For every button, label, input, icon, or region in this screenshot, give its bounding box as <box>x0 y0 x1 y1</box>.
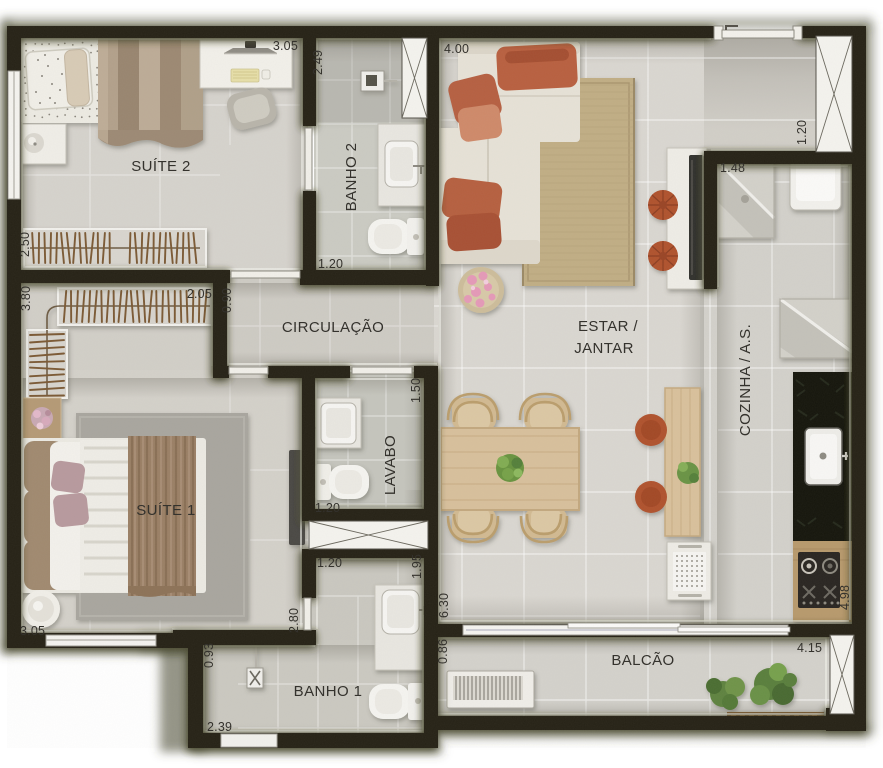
svg-text:ESTAR /: ESTAR / <box>578 318 638 335</box>
svg-text:4.00: 4.00 <box>444 42 469 56</box>
svg-text:2.05: 2.05 <box>187 287 212 301</box>
svg-text:BANHO 2: BANHO 2 <box>343 143 360 212</box>
svg-text:BANHO 1: BANHO 1 <box>294 683 363 700</box>
svg-text:3.05: 3.05 <box>20 624 45 638</box>
svg-text:1.50: 1.50 <box>409 378 423 403</box>
svg-text:1.48: 1.48 <box>720 161 745 175</box>
svg-text:0.86: 0.86 <box>436 639 450 664</box>
svg-text:3.80: 3.80 <box>19 286 33 311</box>
svg-text:2.50: 2.50 <box>18 232 32 257</box>
svg-text:2.49: 2.49 <box>311 50 325 75</box>
svg-text:1.20: 1.20 <box>795 120 809 145</box>
svg-text:2.39: 2.39 <box>207 720 232 734</box>
svg-text:1.20: 1.20 <box>318 257 343 271</box>
svg-text:SUÍTE 1: SUÍTE 1 <box>136 502 195 519</box>
svg-text:1.20: 1.20 <box>315 501 340 515</box>
svg-text:JANTAR: JANTAR <box>574 340 634 357</box>
svg-text:0.93: 0.93 <box>202 643 216 668</box>
svg-text:CIRCULAÇÃO: CIRCULAÇÃO <box>282 319 384 336</box>
svg-text:BALCÃO: BALCÃO <box>611 652 674 669</box>
svg-text:2.80: 2.80 <box>287 608 301 633</box>
svg-text:3.05: 3.05 <box>273 39 298 53</box>
svg-text:1.20: 1.20 <box>317 556 342 570</box>
svg-text:COZINHA / A.S.: COZINHA / A.S. <box>737 324 754 436</box>
svg-text:4.98: 4.98 <box>838 585 852 610</box>
svg-text:1.95: 1.95 <box>410 554 424 579</box>
svg-text:0.90: 0.90 <box>220 288 234 313</box>
svg-text:SUÍTE 2: SUÍTE 2 <box>131 158 190 175</box>
svg-text:4.15: 4.15 <box>797 641 822 655</box>
svg-text:6.30: 6.30 <box>437 593 451 618</box>
svg-text:LAVABO: LAVABO <box>382 435 399 495</box>
